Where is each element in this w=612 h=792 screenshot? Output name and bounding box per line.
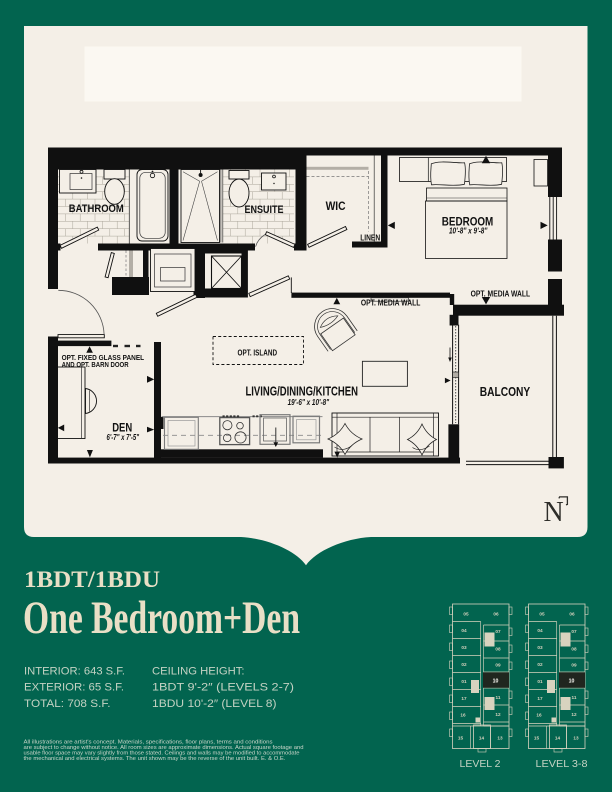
svg-text:13: 13 — [573, 736, 579, 741]
svg-text:05: 05 — [539, 612, 545, 617]
svg-text:16: 16 — [460, 713, 466, 718]
svg-text:13: 13 — [497, 736, 503, 741]
svg-text:ENSUITE: ENSUITE — [245, 204, 284, 216]
svg-text:03: 03 — [537, 645, 543, 650]
svg-text:INTERIOR: 643 S.F.: INTERIOR: 643 S.F. — [24, 665, 125, 677]
svg-text:One Bedroom+Den: One Bedroom+Den — [23, 592, 300, 644]
svg-text:06: 06 — [569, 612, 575, 617]
svg-text:08: 08 — [571, 647, 577, 652]
svg-text:11: 11 — [496, 695, 501, 700]
svg-text:04: 04 — [461, 628, 467, 633]
svg-text:16: 16 — [536, 713, 542, 718]
svg-text:14: 14 — [555, 736, 561, 741]
svg-text:15: 15 — [534, 736, 540, 741]
svg-text:LIVING/DINING/KITCHEN: LIVING/DINING/KITCHEN — [245, 383, 358, 398]
svg-text:LEVEL 2: LEVEL 2 — [460, 758, 501, 770]
svg-text:11: 11 — [572, 695, 577, 700]
svg-text:02: 02 — [461, 662, 467, 667]
svg-text:04: 04 — [537, 628, 543, 633]
svg-text:02: 02 — [537, 662, 543, 667]
svg-text:12: 12 — [495, 712, 501, 717]
svg-text:OPT. MEDIA WALL: OPT. MEDIA WALL — [471, 288, 531, 298]
svg-text:01: 01 — [537, 679, 543, 684]
svg-text:1BDT 9'-2″ (LEVELS 2-7): 1BDT 9'-2″ (LEVELS 2-7) — [152, 682, 294, 694]
svg-text:14: 14 — [479, 736, 485, 741]
svg-text:15: 15 — [458, 736, 464, 741]
svg-text:BATHROOM: BATHROOM — [69, 203, 124, 215]
svg-text:EXTERIOR: 65 S.F.: EXTERIOR: 65 S.F. — [24, 682, 124, 694]
svg-text:BALCONY: BALCONY — [480, 385, 531, 399]
svg-text:WIC: WIC — [326, 201, 346, 213]
svg-text:CEILING HEIGHT:: CEILING HEIGHT: — [152, 665, 245, 677]
svg-text:LEVEL 3-8: LEVEL 3-8 — [536, 758, 588, 770]
svg-text:07: 07 — [495, 629, 501, 634]
svg-text:12: 12 — [571, 712, 577, 717]
svg-text:10: 10 — [493, 679, 499, 685]
svg-text:17: 17 — [461, 696, 467, 701]
svg-text:09: 09 — [571, 663, 577, 668]
svg-text:08: 08 — [495, 647, 501, 652]
svg-text:07: 07 — [571, 629, 577, 634]
svg-text:09: 09 — [495, 663, 501, 668]
svg-text:10'-8" x 9'-8": 10'-8" x 9'-8" — [449, 226, 488, 235]
svg-text:05: 05 — [463, 612, 469, 617]
svg-text:the mechanical and electrical: the mechanical and electrical systems. T… — [24, 756, 286, 762]
svg-text:OPT. ISLAND: OPT. ISLAND — [238, 349, 278, 358]
svg-text:AND OPT. BARN DOOR: AND OPT. BARN DOOR — [62, 360, 130, 369]
svg-text:6'-7" x 7'-5": 6'-7" x 7'-5" — [107, 433, 140, 442]
svg-text:1BDU 10'-2″ (LEVEL 8): 1BDU 10'-2″ (LEVEL 8) — [152, 698, 277, 710]
svg-text:1BDT/1BDU: 1BDT/1BDU — [24, 567, 160, 592]
svg-text:10: 10 — [569, 679, 575, 685]
svg-text:LINEN: LINEN — [360, 233, 380, 242]
svg-text:03: 03 — [461, 645, 467, 650]
svg-text:19'-6" x 10'-8": 19'-6" x 10'-8" — [288, 398, 330, 407]
svg-text:TOTAL: 708 S.F.: TOTAL: 708 S.F. — [24, 698, 111, 710]
svg-text:17: 17 — [537, 696, 543, 701]
svg-text:N: N — [544, 497, 564, 528]
svg-text:OPT. MEDIA WALL: OPT. MEDIA WALL — [361, 298, 421, 308]
svg-text:01: 01 — [461, 679, 467, 684]
svg-text:06: 06 — [493, 612, 499, 617]
